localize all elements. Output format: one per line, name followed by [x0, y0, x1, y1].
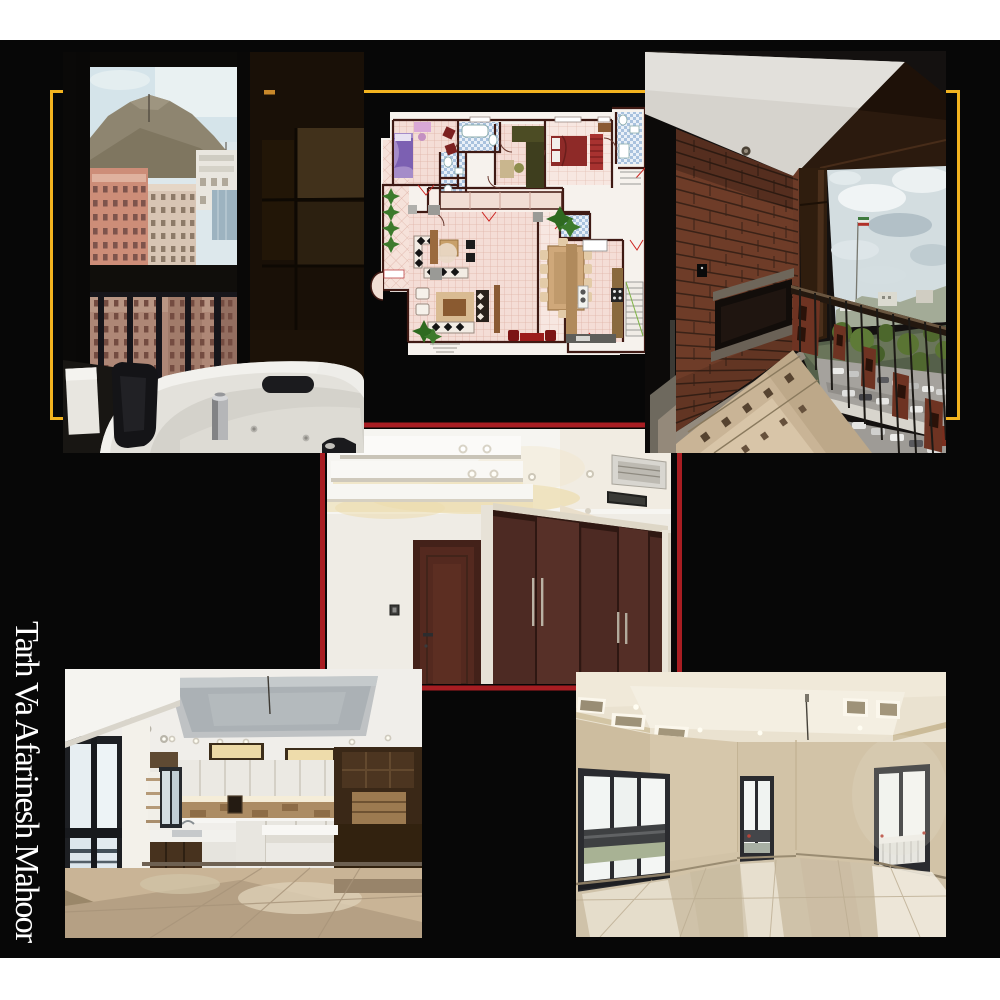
svg-text:Tarh Va Afarinesh Mahoor: Tarh Va Afarinesh Mahoor: [8, 621, 45, 944]
